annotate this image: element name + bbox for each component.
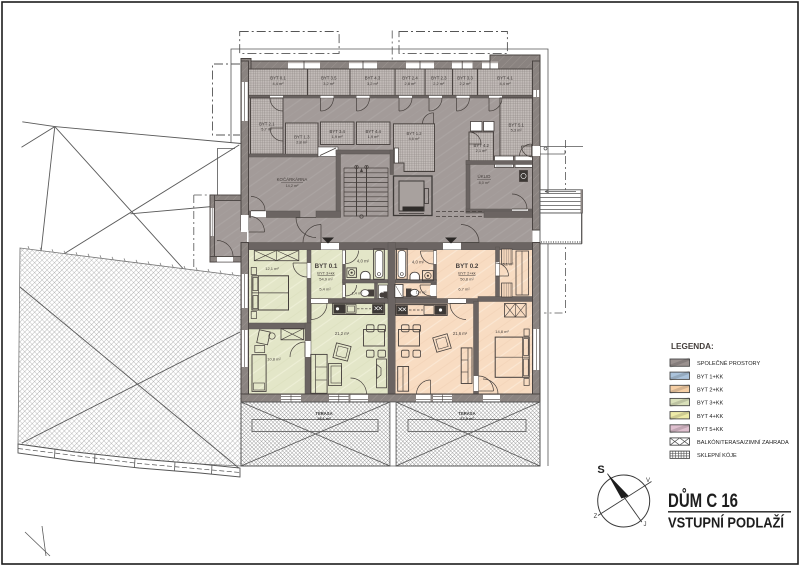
svg-text:BYT 2+kk: BYT 2+kk bbox=[458, 271, 475, 276]
svg-text:VSTUPNÍ PODLAŽÍ: VSTUPNÍ PODLAŽÍ bbox=[668, 514, 785, 532]
svg-text:DŮM C 16: DŮM C 16 bbox=[668, 489, 738, 512]
svg-text:V: V bbox=[646, 478, 650, 484]
svg-text:1,9 m²: 1,9 m² bbox=[368, 134, 380, 139]
svg-text:BYT 3.5: BYT 3.5 bbox=[321, 76, 337, 81]
svg-text:BYT 4.1: BYT 4.1 bbox=[497, 76, 513, 81]
svg-text:BYT 2+KK: BYT 2+KK bbox=[697, 388, 723, 394]
svg-text:2,1 m²: 2,1 m² bbox=[476, 148, 488, 153]
svg-text:4,4 m²: 4,4 m² bbox=[499, 81, 511, 86]
svg-text:BYT 0.2: BYT 0.2 bbox=[456, 263, 479, 270]
svg-text:50,8 m²: 50,8 m² bbox=[460, 277, 474, 282]
svg-text:3,2 m²: 3,2 m² bbox=[367, 81, 379, 86]
svg-text:KOČÁRKÁRNA: KOČÁRKÁRNA bbox=[277, 177, 308, 182]
svg-text:Z: Z bbox=[594, 514, 598, 520]
svg-text:6,7 m²: 6,7 m² bbox=[458, 287, 470, 292]
svg-text:J: J bbox=[644, 522, 647, 528]
svg-text:2,8 m²: 2,8 m² bbox=[404, 81, 416, 86]
svg-text:14,8 m²: 14,8 m² bbox=[495, 329, 509, 334]
svg-text:4,0 m²: 4,0 m² bbox=[412, 260, 425, 265]
svg-text:BYT 1+KK: BYT 1+KK bbox=[697, 374, 723, 380]
svg-text:5,3 m²: 5,3 m² bbox=[511, 128, 523, 133]
svg-text:BYT 3+kk: BYT 3+kk bbox=[317, 271, 334, 276]
svg-text:14,2 m²: 14,2 m² bbox=[286, 184, 300, 188]
svg-text:1,4 m²: 1,4 m² bbox=[352, 292, 363, 296]
svg-text:3,2 m²: 3,2 m² bbox=[323, 81, 335, 86]
svg-text:2,2 m²: 2,2 m² bbox=[433, 81, 445, 86]
svg-text:5,4 m²: 5,4 m² bbox=[319, 287, 331, 292]
svg-text:12,1 m²: 12,1 m² bbox=[265, 266, 279, 271]
svg-text:5,1 m²: 5,1 m² bbox=[503, 263, 514, 267]
svg-text:BYT 3.3: BYT 3.3 bbox=[457, 76, 473, 81]
svg-text:BYT 0.1: BYT 0.1 bbox=[270, 76, 286, 81]
svg-text:BYT 1.2: BYT 1.2 bbox=[406, 131, 422, 136]
svg-text:BALKÓN/TERASA/ZIMNÍ ZAHRADA: BALKÓN/TERASA/ZIMNÍ ZAHRADA bbox=[697, 439, 789, 446]
svg-text:BYT 5+KK: BYT 5+KK bbox=[697, 427, 723, 433]
svg-text:SPOLEČNÉ PROSTORY: SPOLEČNÉ PROSTORY bbox=[697, 360, 760, 367]
svg-text:21,2 m²: 21,2 m² bbox=[335, 331, 350, 336]
svg-text:ÚKLID: ÚKLID bbox=[478, 174, 491, 179]
svg-text:5,7 m²: 5,7 m² bbox=[261, 127, 273, 132]
svg-text:BYT 2.3: BYT 2.3 bbox=[431, 76, 447, 81]
svg-text:BYT 4.3: BYT 4.3 bbox=[365, 76, 381, 81]
svg-text:4,6 m²: 4,6 m² bbox=[409, 137, 420, 141]
svg-text:2,8 m²: 2,8 m² bbox=[296, 140, 308, 145]
svg-text:BYT 3+KK: BYT 3+KK bbox=[697, 401, 723, 407]
svg-text:4,4 m²: 4,4 m² bbox=[272, 81, 284, 86]
svg-text:8,0 m²: 8,0 m² bbox=[479, 181, 490, 185]
svg-text:21,6 m²: 21,6 m² bbox=[453, 331, 468, 336]
svg-text:BYT 2.4: BYT 2.4 bbox=[402, 76, 418, 81]
svg-text:BYT 4+KK: BYT 4+KK bbox=[697, 414, 723, 420]
svg-text:S: S bbox=[597, 464, 604, 476]
svg-text:LEGENDA:: LEGENDA: bbox=[671, 342, 714, 351]
svg-text:SKLEPNÍ KÓJE: SKLEPNÍ KÓJE bbox=[697, 452, 737, 459]
svg-text:4,0 m²: 4,0 m² bbox=[357, 259, 370, 264]
svg-text:1,9 m²: 1,9 m² bbox=[332, 134, 344, 139]
svg-text:28,1 m²: 28,1 m² bbox=[317, 416, 331, 421]
svg-text:2,2 m²: 2,2 m² bbox=[459, 81, 471, 86]
svg-text:27,9 m²: 27,9 m² bbox=[460, 416, 474, 421]
svg-text:54,9 m²: 54,9 m² bbox=[319, 277, 333, 282]
svg-text:BYT 0.1: BYT 0.1 bbox=[315, 263, 338, 270]
svg-text:10,8 m²: 10,8 m² bbox=[267, 357, 281, 362]
svg-text:1,4 m²: 1,4 m² bbox=[416, 291, 427, 295]
